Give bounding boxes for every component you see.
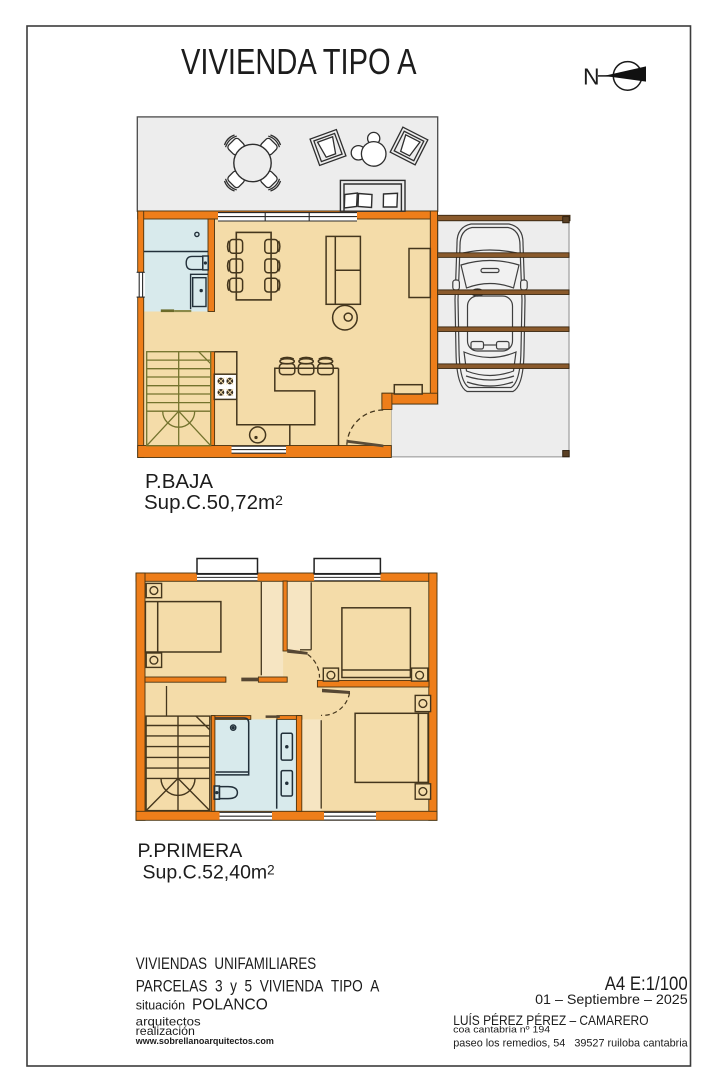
svg-text:PARCELAS 3 y 5 VIVIENDA T: PARCELAS 3 y 5 VIVIENDA TIPO A — [136, 977, 380, 996]
svg-text:P.BAJA: P.BAJA — [145, 470, 213, 493]
svg-text:N: N — [583, 64, 600, 90]
svg-text:01 – Septiembre – 2025: 01 – Septiembre – 2025 — [535, 991, 688, 1007]
svg-text:www.sobrellanoarquitectos.com: www.sobrellanoarquitectos.com — [135, 1035, 274, 1046]
svg-text:paseo los remedios, 54 39527: paseo los remedios, 54 39527 ruiloba can… — [453, 1038, 688, 1050]
svg-text:VIVIENDAS UNIFAMILIARES: VIVIENDAS UNIFAMILIARES — [136, 954, 317, 973]
svg-text:Sup.C.52,40m2: Sup.C.52,40m2 — [143, 862, 275, 884]
svg-text:situación POLANCO: situación POLANCO — [136, 997, 268, 1014]
svg-text:VIVIENDA TIPO A: VIVIENDA TIPO A — [181, 41, 417, 82]
svg-text:P.PRIMERA: P.PRIMERA — [138, 840, 243, 862]
svg-text:coa cantabria nº 194: coa cantabria nº 194 — [453, 1025, 550, 1036]
svg-text:Sup.C.50,72m2: Sup.C.50,72m2 — [144, 491, 283, 514]
